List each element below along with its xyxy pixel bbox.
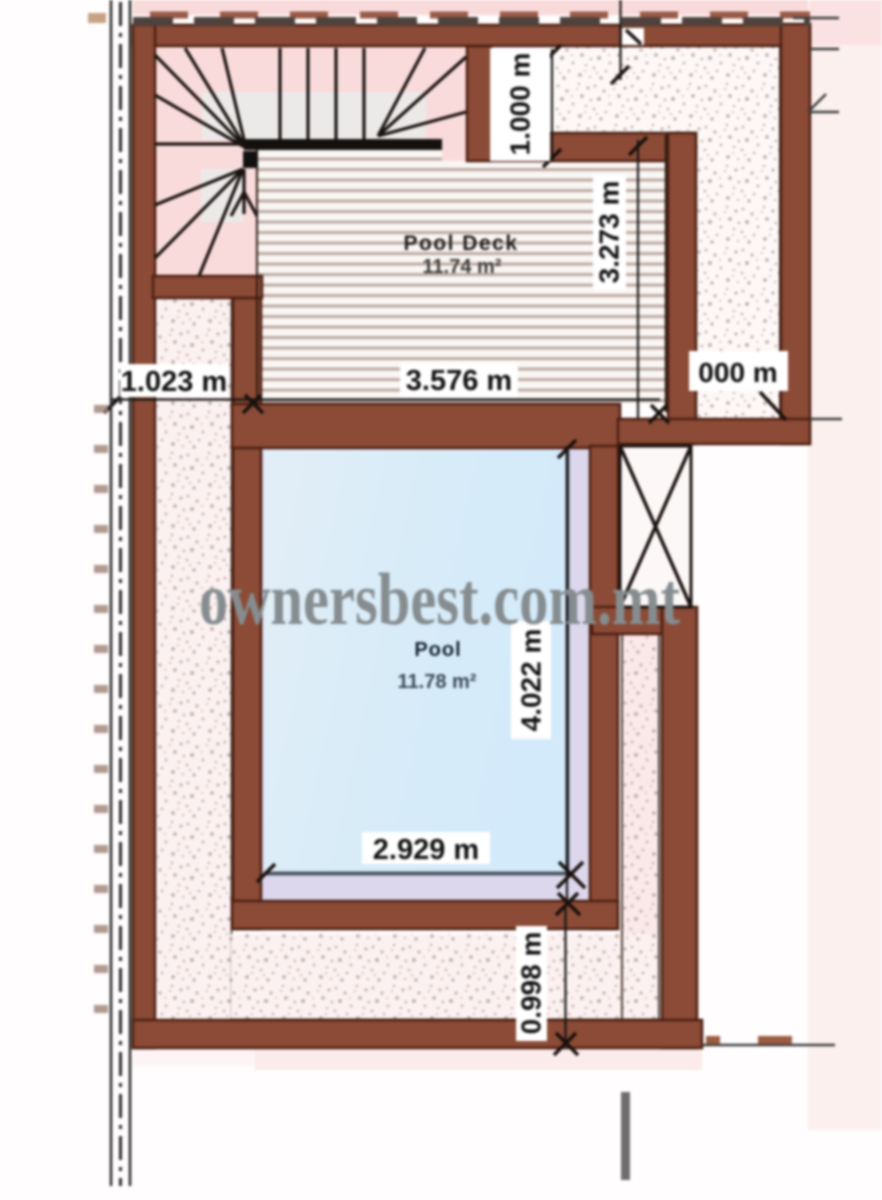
svg-text:1.023 m: 1.023 m — [121, 366, 227, 398]
svg-text:Pool Deck: Pool Deck — [403, 232, 518, 255]
svg-text:11.78 m²: 11.78 m² — [398, 671, 477, 693]
svg-text:2.929 m: 2.929 m — [373, 834, 479, 866]
svg-text:11.74 m²: 11.74 m² — [423, 256, 502, 278]
svg-text:1.000 m: 1.000 m — [505, 53, 536, 156]
svg-text:4.022 m: 4.022 m — [516, 629, 547, 732]
svg-text:ownersbest.com.mt: ownersbest.com.mt — [199, 559, 680, 641]
svg-text:Pool: Pool — [414, 639, 461, 661]
svg-text:000 m: 000 m — [698, 357, 777, 388]
svg-text:0.998 m: 0.998 m — [516, 932, 547, 1035]
svg-text:3.576 m: 3.576 m — [406, 365, 512, 397]
svg-text:3.273 m: 3.273 m — [594, 181, 625, 284]
